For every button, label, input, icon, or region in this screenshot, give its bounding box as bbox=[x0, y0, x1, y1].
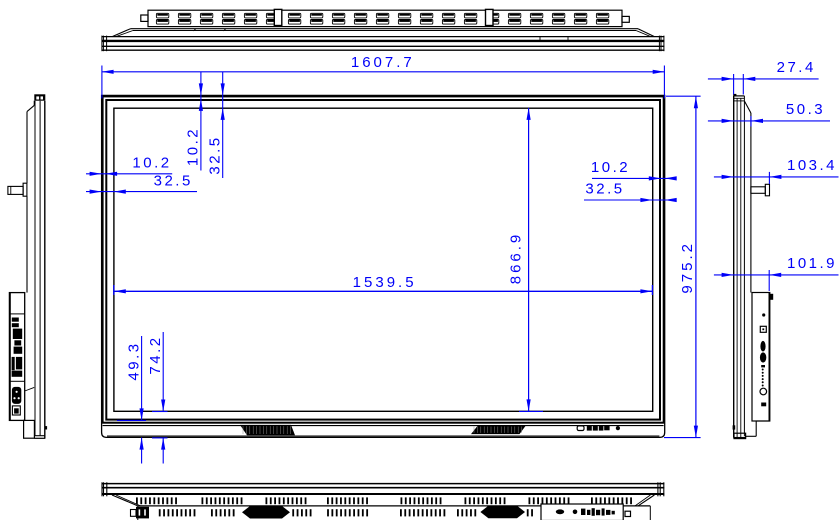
svg-text:103.4: 103.4 bbox=[787, 157, 837, 174]
svg-text:1539.5: 1539.5 bbox=[353, 274, 417, 291]
svg-text:10.2: 10.2 bbox=[591, 159, 630, 176]
svg-text:27.4: 27.4 bbox=[777, 59, 816, 76]
svg-text:975.2: 975.2 bbox=[679, 241, 696, 294]
svg-text:32.5: 32.5 bbox=[154, 172, 193, 189]
svg-text:866.9: 866.9 bbox=[507, 232, 524, 285]
svg-text:49.3: 49.3 bbox=[125, 341, 142, 380]
svg-text:50.3: 50.3 bbox=[786, 101, 825, 118]
svg-text:32.5: 32.5 bbox=[206, 135, 223, 174]
svg-text:10.2: 10.2 bbox=[185, 127, 202, 166]
svg-text:101.9: 101.9 bbox=[787, 255, 837, 272]
svg-text:32.5: 32.5 bbox=[585, 180, 624, 197]
svg-text:1607.7: 1607.7 bbox=[351, 54, 415, 71]
svg-text:10.2: 10.2 bbox=[132, 154, 171, 171]
svg-text:74.2: 74.2 bbox=[147, 335, 164, 374]
